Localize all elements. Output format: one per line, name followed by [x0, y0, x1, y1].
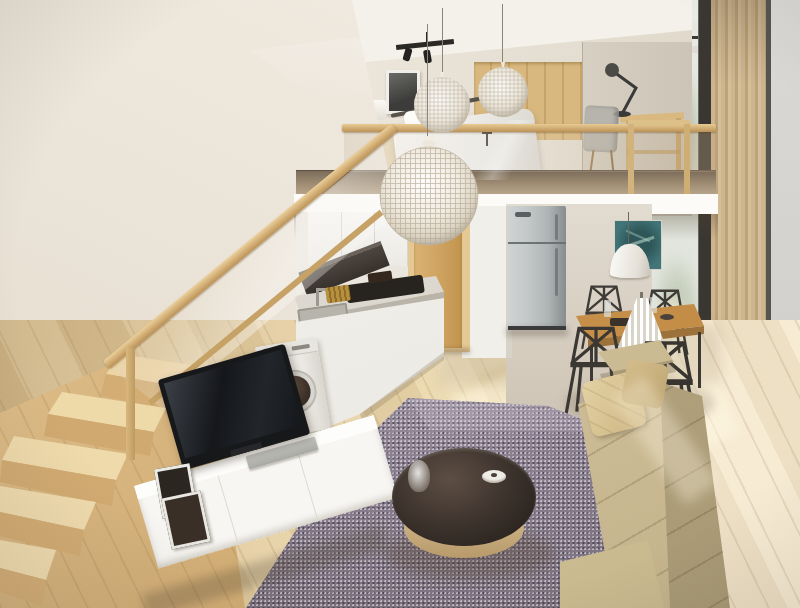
pendant-globe-small — [412, 72, 472, 134]
pendant-globe-small-2 — [476, 62, 530, 118]
fridge-handle-top — [555, 214, 558, 240]
stair-rail-post — [126, 348, 135, 460]
dome-pendant-cord — [628, 212, 629, 248]
brass-basket — [325, 284, 351, 303]
pendant-globe-large — [378, 136, 480, 248]
console-seam — [218, 476, 239, 545]
fridge-shadow — [506, 328, 568, 336]
fridge — [508, 206, 566, 330]
table-bowl — [660, 314, 674, 320]
loft-apartment-render — [0, 0, 800, 608]
console-seam-2 — [297, 452, 318, 521]
dish-dot — [491, 473, 497, 477]
fridge-divider — [508, 242, 566, 244]
table-glass — [604, 300, 611, 317]
fridge-logo — [515, 212, 531, 217]
rail-post — [628, 120, 690, 126]
big-pendant-cord — [427, 24, 428, 146]
rail-post-3 — [684, 124, 690, 196]
rail-post-2 — [628, 124, 634, 196]
pendant-cord — [442, 8, 443, 74]
pendant-cord-2 — [502, 4, 503, 66]
glass-vase — [408, 460, 430, 492]
fridge-handle-bottom — [555, 248, 558, 296]
